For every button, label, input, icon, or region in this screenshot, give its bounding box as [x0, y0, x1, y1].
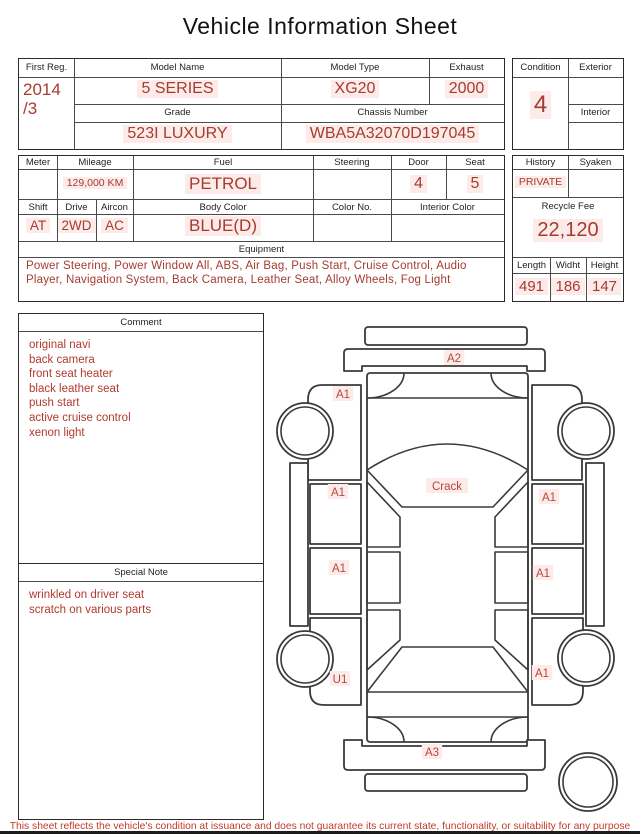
damage-label: A1	[542, 492, 556, 504]
fuel-label: Fuel	[133, 157, 313, 168]
damage-label: A3	[425, 747, 439, 759]
grid-line	[19, 199, 504, 200]
door-label: Door	[391, 157, 446, 168]
fuel-value: PETROL	[133, 174, 313, 194]
model-name-value: 5 SERIES	[74, 80, 281, 98]
chassis-number-label: Chassis Number	[281, 107, 504, 118]
model-type-value: XG20	[281, 80, 429, 98]
width-label: Widht	[550, 260, 586, 271]
rear-molding-shape	[365, 774, 527, 791]
special-note-lines: wrinkled on driver seatscratch on variou…	[29, 588, 255, 617]
rear-left-wheel-icon	[277, 631, 333, 687]
model-name-label: Model Name	[74, 62, 281, 73]
length-value: 491	[513, 278, 550, 295]
mileage-value: 129,000 KM	[57, 177, 133, 189]
grid-line	[513, 257, 623, 258]
bottom-border-line	[0, 831, 640, 834]
note-line: original navi	[29, 338, 255, 353]
condition-value: 4	[513, 91, 568, 119]
note-line: front seat heater	[29, 367, 255, 382]
left-rear-door-shape	[310, 548, 361, 614]
note-line: push start	[29, 396, 255, 411]
grid-line	[568, 104, 623, 105]
condition-label: Condition	[513, 62, 568, 73]
note-line: black leather seat	[29, 382, 255, 397]
right-rear-door-shape	[532, 548, 583, 614]
history-fee-table: History Syaken PRIVATE Recycle Fee 22,12…	[512, 155, 624, 302]
grid-line	[19, 169, 504, 170]
first-reg-label: First Reg.	[19, 62, 74, 73]
exterior-label: Exterior	[568, 62, 623, 73]
seat-value: 5	[446, 175, 504, 193]
length-label: Length	[513, 260, 550, 271]
equipment-value: Power Steering, Power Window All, ABS, A…	[26, 259, 497, 287]
car-damage-diagram: A2A1CrackA1A1A1A1U1A1A3	[270, 310, 640, 830]
damage-label: A1	[536, 568, 550, 580]
exhaust-label: Exhaust	[429, 62, 504, 73]
damage-label: A1	[332, 563, 346, 575]
interior-color-label: Interior Color	[391, 202, 504, 213]
note-line: scratch on various parts	[29, 603, 255, 618]
note-line: xenon light	[29, 426, 255, 441]
rear-bumper-shape	[344, 740, 545, 770]
front-molding-shape	[365, 327, 527, 345]
note-line: active cruise control	[29, 411, 255, 426]
meter-label: Meter	[19, 157, 57, 168]
door-value: 4	[391, 175, 446, 193]
grid-line	[19, 331, 263, 332]
special-note-box: Special Note wrinkled on driver seatscra…	[18, 563, 264, 820]
body-color-label: Body Color	[133, 202, 313, 213]
grade-label: Grade	[74, 107, 281, 118]
grid-line	[19, 214, 504, 215]
grid-line	[19, 241, 504, 242]
comment-label: Comment	[19, 317, 263, 328]
drive-label: Drive	[57, 202, 96, 213]
note-line: wrinkled on driver seat	[29, 588, 255, 603]
damage-label: A2	[447, 353, 461, 365]
steering-label: Steering	[313, 157, 391, 168]
comment-lines: original naviback camerafront seat heate…	[29, 338, 255, 440]
grade-value: 523I LUXURY	[74, 125, 281, 143]
width-value: 186	[550, 278, 586, 295]
history-value: PRIVATE	[513, 176, 568, 188]
exhaust-value: 2000	[429, 80, 504, 98]
mileage-label: Mileage	[57, 157, 133, 168]
damage-label: A1	[336, 389, 350, 401]
aircon-label: Aircon	[96, 202, 133, 213]
grid-line	[513, 273, 623, 274]
interior-label: Interior	[568, 107, 623, 118]
condition-table: Condition 4 Exterior Interior	[512, 58, 624, 150]
rear-right-wheel-icon	[558, 630, 614, 686]
damage-label: U1	[333, 674, 348, 686]
body-outline	[367, 373, 528, 742]
vehicle-information-sheet: Vehicle Information Sheet First Reg. 201…	[0, 0, 640, 835]
right-rocker-shape	[586, 463, 604, 626]
grid-line	[513, 169, 623, 170]
first-reg-value: 2014/3	[23, 80, 73, 118]
damage-label: A1	[535, 668, 549, 680]
grid-line	[513, 197, 623, 198]
grid-line	[568, 122, 623, 123]
aircon-value: AC	[96, 218, 133, 233]
chassis-number-value: WBA5A32070D197045	[281, 125, 504, 143]
grid-line	[19, 257, 504, 258]
grid-line	[19, 77, 504, 78]
grid-line	[19, 581, 263, 582]
shift-value: AT	[19, 218, 57, 233]
identity-table: First Reg. 2014/3 Model Name 5 SERIES Mo…	[18, 58, 505, 150]
shift-label: Shift	[19, 202, 57, 213]
front-right-wheel-icon	[558, 403, 614, 459]
history-label: History	[513, 157, 568, 168]
body-color-value: BLUE(D)	[133, 216, 313, 236]
grid-line	[74, 122, 504, 123]
special-note-label: Special Note	[19, 567, 263, 578]
comment-box: Comment original naviback camerafront se…	[18, 313, 264, 565]
model-type-label: Model Type	[281, 62, 429, 73]
front-left-wheel-icon	[277, 403, 333, 459]
height-label: Height	[586, 260, 623, 271]
seat-label: Seat	[446, 157, 504, 168]
syaken-label: Syaken	[568, 157, 623, 168]
grid-line	[513, 77, 623, 78]
height-value: 147	[586, 278, 623, 295]
damage-label: A1	[331, 487, 345, 499]
drive-value: 2WD	[57, 218, 96, 233]
damage-label: Crack	[432, 481, 462, 493]
details-table: Meter Mileage Fuel Steering Door Seat 12…	[18, 155, 505, 302]
color-no-label: Color No.	[313, 202, 391, 213]
left-rocker-shape	[290, 463, 308, 626]
note-line: back camera	[29, 353, 255, 368]
equipment-label: Equipment	[19, 244, 504, 255]
page-title: Vehicle Information Sheet	[0, 13, 640, 40]
recycle-fee-value: 22,120	[513, 219, 623, 242]
spare-wheel-icon	[559, 753, 617, 811]
grid-line	[74, 104, 504, 105]
recycle-fee-label: Recycle Fee	[513, 201, 623, 212]
